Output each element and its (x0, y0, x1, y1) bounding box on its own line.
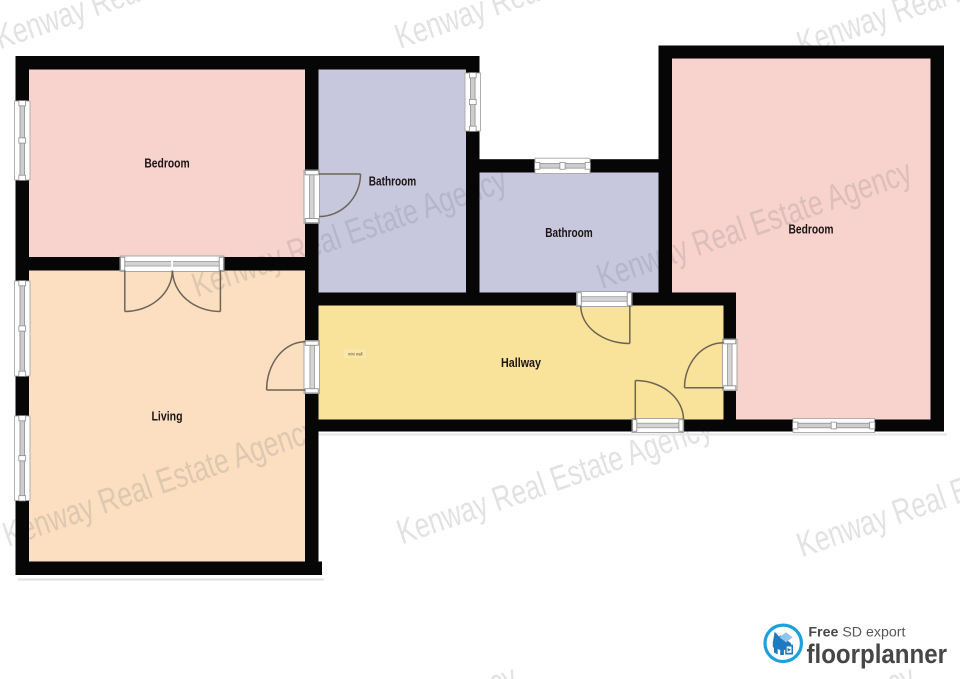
svg-text:mini wall: mini wall (348, 352, 363, 357)
svg-text:Hallway: Hallway (501, 356, 541, 370)
svg-text:Bathroom: Bathroom (369, 175, 417, 189)
svg-text:Bedroom: Bedroom (144, 157, 189, 171)
svg-text:Bathroom: Bathroom (545, 226, 593, 240)
svg-text:floorplanner: floorplanner (807, 639, 948, 669)
svg-text:Living: Living (152, 410, 183, 424)
svg-text:Bedroom: Bedroom (789, 223, 834, 237)
